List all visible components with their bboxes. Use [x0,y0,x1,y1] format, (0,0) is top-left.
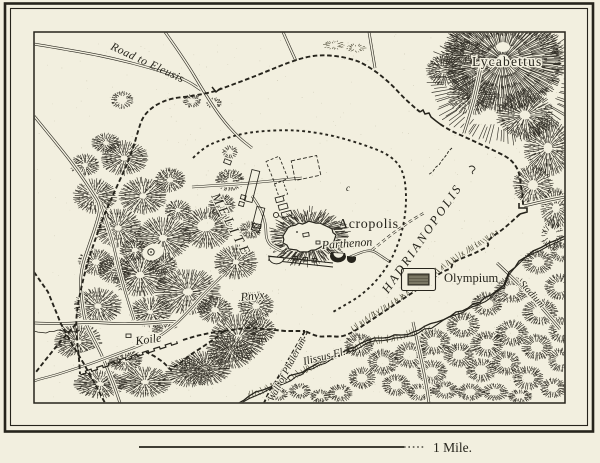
svg-text:Pnyx: Pnyx [239,287,266,304]
svg-text:c: c [346,183,350,193]
svg-text:Acropolis: Acropolis [338,217,399,232]
svg-text:Lycabettus: Lycabettus [472,54,542,69]
svg-text:Olympium: Olympium [444,271,498,285]
svg-text:1 Mile.: 1 Mile. [433,440,472,455]
